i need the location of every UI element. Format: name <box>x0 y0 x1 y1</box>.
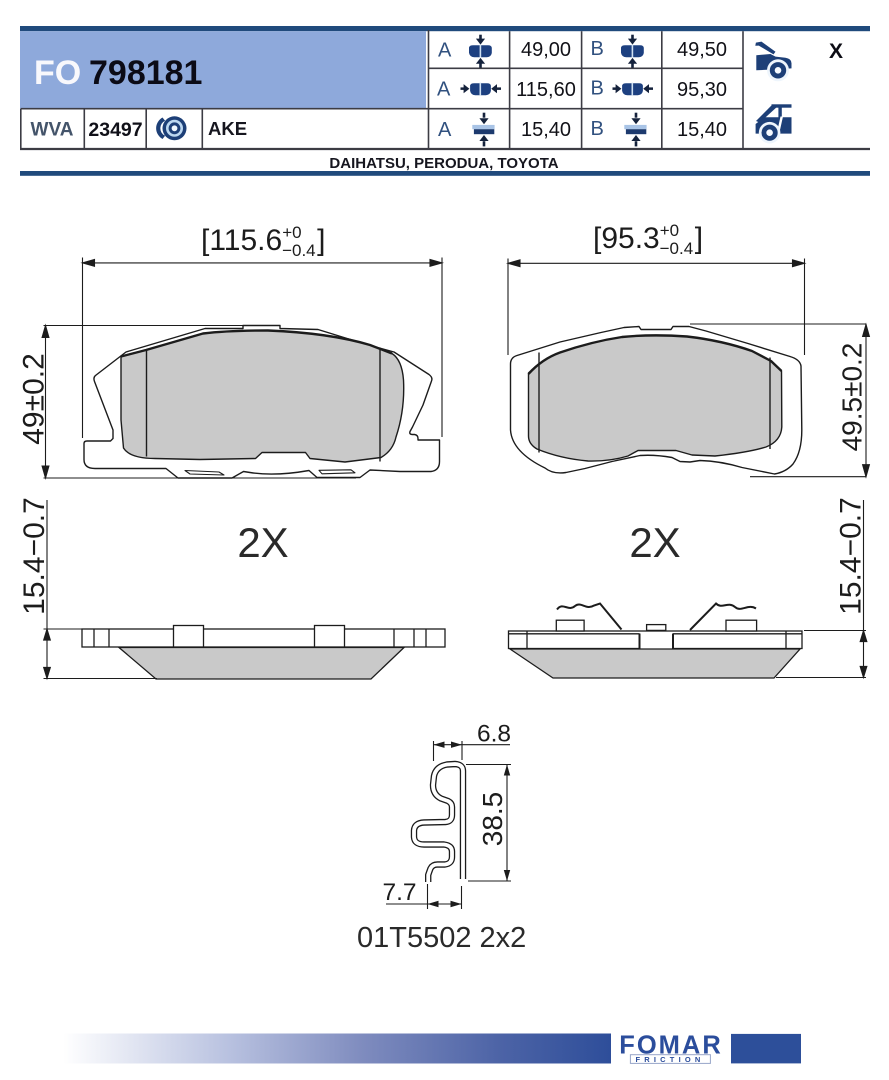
svg-text:49,00: 49,00 <box>521 39 571 61</box>
svg-text:7.7: 7.7 <box>383 879 417 906</box>
svg-text:[95.3+0−0.4]: [95.3+0−0.4] <box>593 221 703 258</box>
svg-text:B: B <box>591 38 604 60</box>
svg-text:2X: 2X <box>237 519 288 566</box>
svg-text:X: X <box>829 40 843 63</box>
svg-text:798181: 798181 <box>89 54 202 92</box>
svg-text:15,40: 15,40 <box>521 119 571 141</box>
svg-text:15,40: 15,40 <box>677 119 727 141</box>
svg-text:A: A <box>437 79 451 101</box>
svg-text:DAIHATSU, PERODUA, TOYOTA: DAIHATSU, PERODUA, TOYOTA <box>329 155 558 172</box>
svg-text:49.5±0.2: 49.5±0.2 <box>837 343 868 452</box>
svg-text:B: B <box>591 118 604 140</box>
svg-text:01T5502 2x2: 01T5502 2x2 <box>357 922 526 954</box>
svg-text:15.4−0.7: 15.4−0.7 <box>835 497 868 615</box>
svg-text:A: A <box>438 40 452 62</box>
svg-text:49,50: 49,50 <box>677 39 727 61</box>
svg-text:AKE: AKE <box>208 118 247 139</box>
svg-text:15.4−0.7: 15.4−0.7 <box>18 497 51 615</box>
svg-text:WVA: WVA <box>31 120 74 141</box>
svg-text:FO: FO <box>34 54 81 92</box>
svg-text:A: A <box>438 119 452 141</box>
svg-text:[115.6+0−0.4]: [115.6+0−0.4] <box>201 223 325 260</box>
svg-text:115,60: 115,60 <box>516 79 576 101</box>
svg-text:23497: 23497 <box>88 119 142 141</box>
svg-text:38.5: 38.5 <box>477 792 508 847</box>
svg-text:B: B <box>591 78 604 100</box>
svg-text:6.8: 6.8 <box>477 721 511 748</box>
svg-text:95,30: 95,30 <box>677 79 727 101</box>
svg-text:49±0.2: 49±0.2 <box>18 353 51 445</box>
svg-text:FRICTION: FRICTION <box>635 1055 704 1064</box>
svg-text:2X: 2X <box>629 519 680 566</box>
